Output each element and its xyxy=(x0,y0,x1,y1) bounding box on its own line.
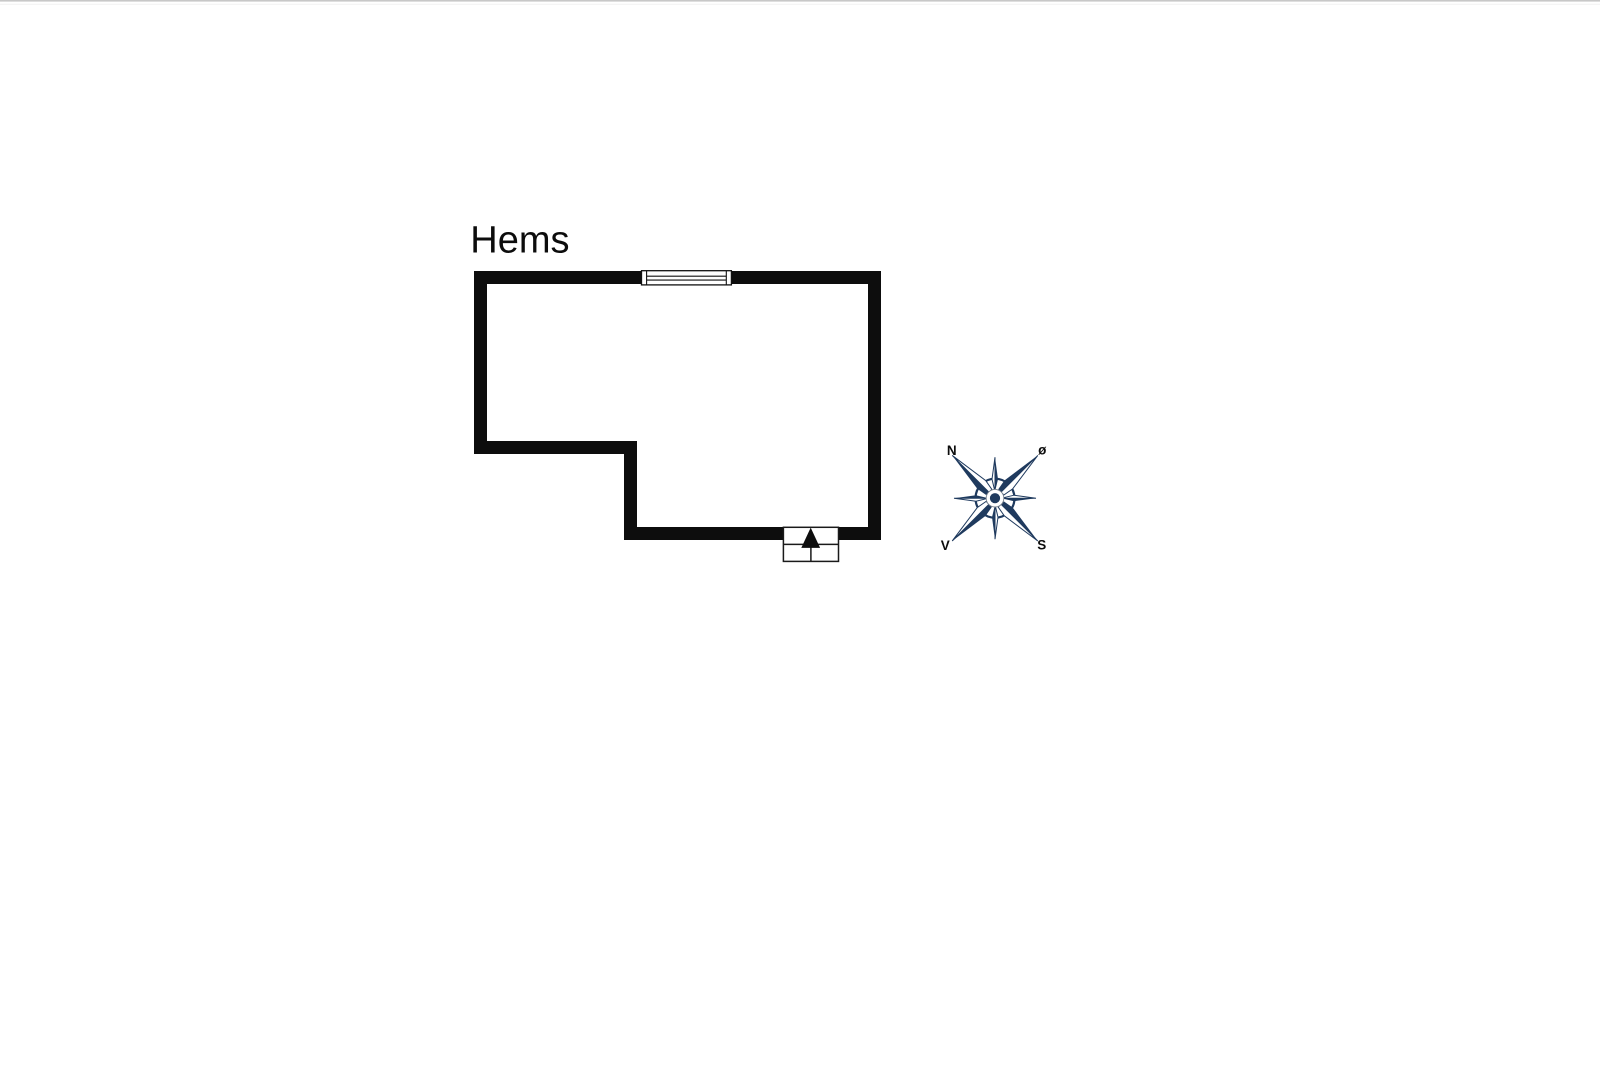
svg-text:S: S xyxy=(1037,538,1046,553)
svg-text:V: V xyxy=(941,538,950,553)
svg-text:N: N xyxy=(947,443,957,458)
svg-text:Hems: Hems xyxy=(470,220,569,262)
svg-text:ø: ø xyxy=(1038,442,1047,457)
